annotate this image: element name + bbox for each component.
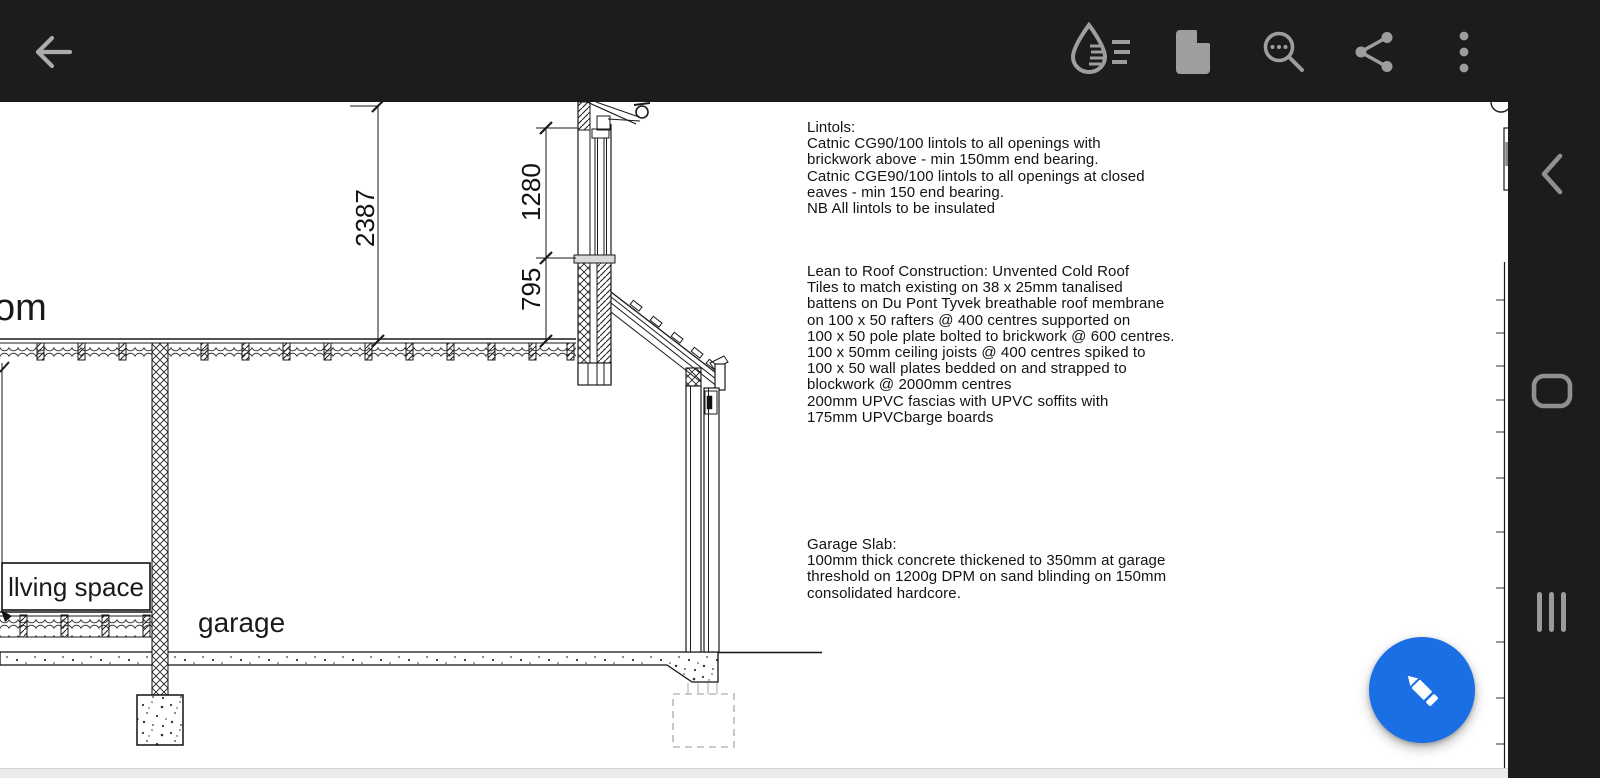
garage-door-frame <box>686 368 719 652</box>
foundation-pad-dashed <box>673 683 734 747</box>
pdf-page-canvas[interactable]: 2387 1280 795 om llving space garage <box>0 102 1508 778</box>
dimension-label: 795 <box>516 268 546 311</box>
ground-slab <box>0 652 822 682</box>
edit-fab-button[interactable] <box>1369 637 1475 743</box>
dimension-label: 2387 <box>350 189 380 247</box>
ink-annotation-button[interactable] <box>1066 22 1134 80</box>
search-icon <box>1261 63 1307 78</box>
dimension-label: 1280 <box>516 163 546 221</box>
garage-label: garage <box>198 607 285 638</box>
overflow-menu-button[interactable] <box>1455 29 1473 75</box>
nav-back-chevron-icon <box>1536 186 1566 201</box>
back-button[interactable] <box>30 30 76 74</box>
android-nav-bar <box>1508 102 1600 778</box>
main-wall <box>574 102 650 385</box>
overflow-menu-icon <box>1455 63 1473 78</box>
dividing-wall <box>137 343 183 745</box>
nav-home-button[interactable] <box>1530 372 1574 410</box>
lean-to-roof <box>611 292 728 390</box>
nav-home-squircle-icon <box>1530 398 1574 413</box>
living-space-label: llving space <box>1 563 150 622</box>
dimension-glazing: 1280 795 <box>516 122 578 347</box>
ink-drop-icon <box>1066 68 1134 83</box>
search-button[interactable] <box>1261 29 1307 75</box>
nav-back-button[interactable] <box>1536 150 1566 198</box>
ceiling-structure <box>0 339 576 360</box>
architectural-section-drawing: 2387 1280 795 om llving space garage <box>0 102 1508 778</box>
room-label-partial: om <box>0 287 47 329</box>
page-thumbnail-icon <box>1175 63 1211 78</box>
nav-recents-button[interactable] <box>1536 590 1568 634</box>
note-garage-slab: Garage Slab: 100mm thick concrete thicke… <box>807 537 1237 602</box>
svg-text:llving space: llving space <box>8 572 144 602</box>
note-lean-to-roof: Lean to Roof Construction: Unvented Cold… <box>807 264 1247 426</box>
page-edge-fragments <box>1491 102 1508 768</box>
page-gap-divider <box>0 768 1508 778</box>
dimension-floor-to-ceiling: 2387 <box>350 102 384 347</box>
back-arrow-icon <box>30 62 76 77</box>
nav-recents-icon <box>1536 622 1568 637</box>
roof-battens <box>630 300 717 369</box>
top-toolbar <box>0 0 1600 102</box>
share-button[interactable] <box>1354 31 1396 73</box>
note-lintols: Lintols: Catnic CG90/100 lintols to all … <box>807 120 1237 217</box>
pages-button[interactable] <box>1175 29 1211 75</box>
share-icon <box>1354 61 1396 76</box>
